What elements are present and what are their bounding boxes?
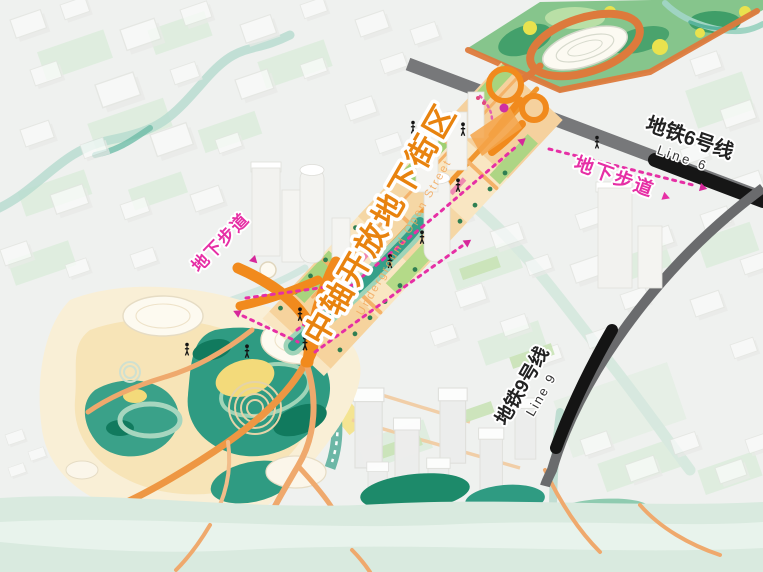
masterplan-svg: Underground Open Street 中轴开放地下街区 地铁6号线 L… [0, 0, 763, 572]
masterplan-map: Underground Open Street 中轴开放地下街区 地铁6号线 L… [0, 0, 763, 572]
metro-station-dot-icon [500, 104, 509, 113]
